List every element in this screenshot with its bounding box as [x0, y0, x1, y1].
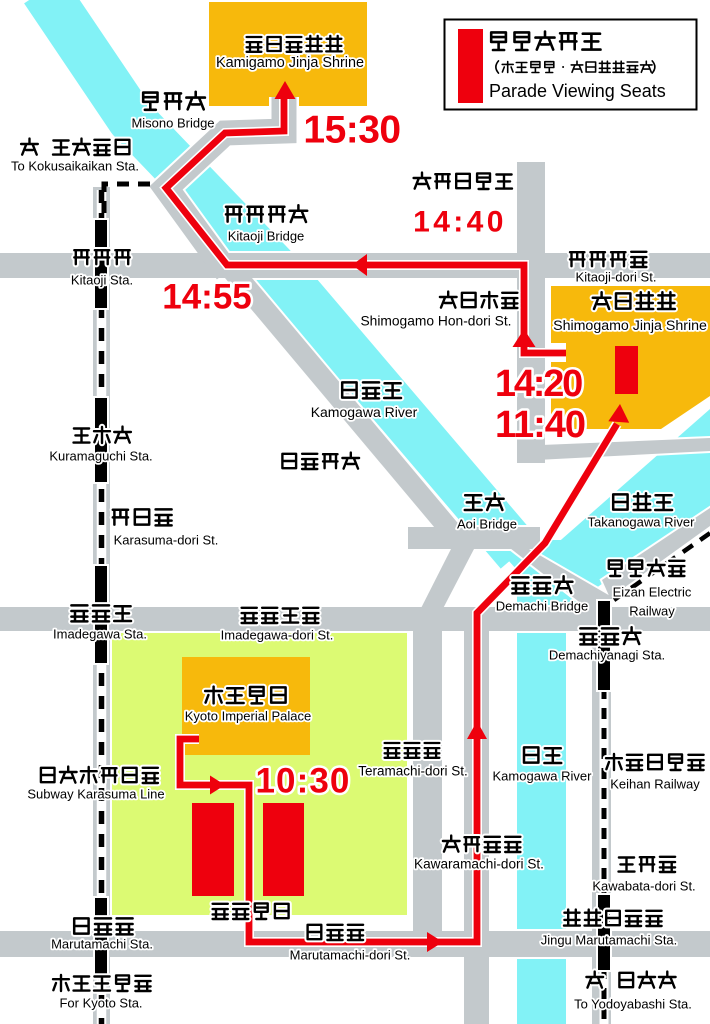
- svg-text:Parade Viewing Seats: Parade Viewing Seats: [489, 81, 666, 101]
- svg-text:10:30: 10:30: [255, 762, 350, 801]
- svg-text:Misono Bridge: Misono Bridge: [131, 116, 214, 131]
- svg-text:To Kokusaikaikan Sta.: To Kokusaikaikan Sta.: [11, 159, 139, 174]
- svg-text:Shimogamo Hon-dori St.: Shimogamo Hon-dori St.: [360, 314, 511, 329]
- svg-text:Marutamachi-dori St.: Marutamachi-dori St.: [290, 948, 411, 963]
- svg-text:Kawabata-dori St.: Kawabata-dori St.: [592, 879, 695, 894]
- svg-text:To Yodoyabashi Sta.: To Yodoyabashi Sta.: [574, 997, 692, 1012]
- svg-text:Kuramaguchi Sta.: Kuramaguchi Sta.: [49, 449, 152, 464]
- svg-text:Demachi Bridge: Demachi Bridge: [496, 599, 589, 614]
- svg-text:Kamigamo Jinja Shrine: Kamigamo Jinja Shrine: [216, 55, 364, 71]
- svg-text:Eizan Electric: Eizan Electric: [613, 585, 692, 600]
- svg-text:Kyoto Imperial Palace: Kyoto Imperial Palace: [185, 709, 311, 724]
- svg-text:14:20: 14:20: [495, 363, 582, 405]
- svg-text:Kitaoji Bridge: Kitaoji Bridge: [228, 229, 305, 244]
- svg-text:Keihan Railway: Keihan Railway: [610, 777, 700, 792]
- svg-text:Jingu Marutamachi Sta.: Jingu Marutamachi Sta.: [541, 933, 678, 948]
- svg-text:11:40: 11:40: [495, 404, 585, 446]
- svg-text:Aoi Bridge: Aoi Bridge: [457, 517, 517, 532]
- svg-text:Kawaramachi-dori St.: Kawaramachi-dori St.: [414, 857, 544, 872]
- svg-text:Railway: Railway: [629, 604, 675, 619]
- svg-text:Kitaoji-dori St.: Kitaoji-dori St.: [576, 270, 657, 285]
- svg-text:Kamogawa River: Kamogawa River: [493, 769, 593, 784]
- svg-text:14:40: 14:40: [413, 206, 507, 239]
- svg-text:Imadegawa-dori St.: Imadegawa-dori St.: [221, 628, 334, 643]
- svg-text:Kitaoji Sta.: Kitaoji Sta.: [71, 273, 133, 288]
- svg-text:Shimogamo Jinja Shrine: Shimogamo Jinja Shrine: [553, 318, 707, 334]
- svg-text:Teramachi-dori St.: Teramachi-dori St.: [358, 764, 468, 779]
- svg-text:15:30: 15:30: [303, 109, 400, 152]
- svg-text:Takanogawa River: Takanogawa River: [588, 515, 696, 530]
- svg-text:Demachiyanagi Sta.: Demachiyanagi Sta.: [549, 648, 665, 663]
- svg-text:14:55: 14:55: [162, 278, 252, 317]
- svg-text:Imadegawa Sta.: Imadegawa Sta.: [53, 627, 147, 642]
- svg-text:For Kyoto Sta.: For Kyoto Sta.: [59, 996, 142, 1011]
- svg-text:Karasuma-dori St.: Karasuma-dori St.: [114, 533, 219, 548]
- svg-text:Subway Karasuma Line: Subway Karasuma Line: [27, 787, 164, 802]
- svg-text:Marutamachi Sta.: Marutamachi Sta.: [51, 937, 153, 952]
- svg-text:Kamogawa River: Kamogawa River: [311, 404, 418, 420]
